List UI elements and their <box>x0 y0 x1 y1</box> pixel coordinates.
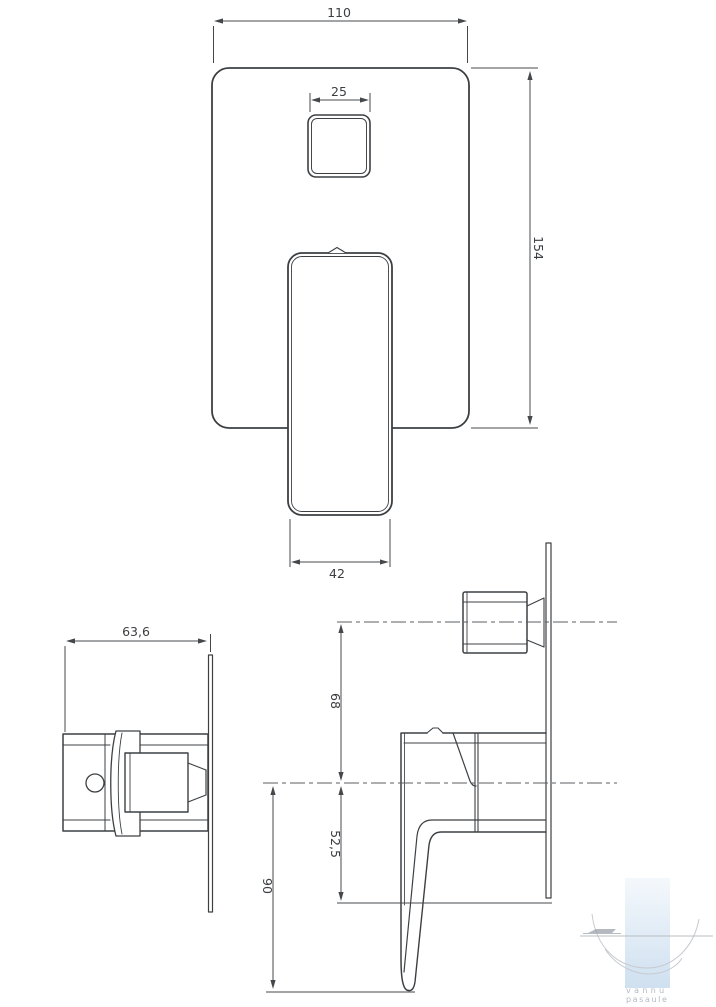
side-handle-index-mark <box>427 728 443 733</box>
dim-110-lines <box>214 21 468 63</box>
dim-636-lines <box>65 634 211 732</box>
top-fixing-hole <box>86 774 104 792</box>
side-view <box>401 543 551 991</box>
front-diverter-button <box>308 115 370 177</box>
dim-label-handle-width: 42 <box>329 566 345 581</box>
watermark-text-line2: pasaule <box>626 995 668 1004</box>
dim-label-depth: 63,6 <box>122 624 150 639</box>
dim-label-plate-bottom-offset: 52,5 <box>328 830 343 858</box>
dim-label-diverter-offset: 68 <box>328 693 343 709</box>
dim-42-lines <box>290 519 390 567</box>
technical-drawing-page: vannu pasaule <box>0 0 716 1007</box>
top-plate-edge <box>209 655 213 912</box>
side-body-lower-edge-upper <box>404 820 546 972</box>
dim-label-height: 154 <box>531 236 546 260</box>
watermark-logo: vannu pasaule <box>580 878 713 1004</box>
dim-label-width: 110 <box>327 5 351 20</box>
side-body-lower-edge-and-lever <box>409 832 546 991</box>
dim-label-handle-drop: 90 <box>260 878 275 894</box>
dim-label-button-width: 25 <box>331 84 347 99</box>
technical-drawing-canvas: vannu pasaule <box>0 0 716 1007</box>
watermark-streak <box>588 929 616 933</box>
centerlines <box>263 622 617 783</box>
side-body-joint-lines <box>475 733 478 832</box>
front-view <box>212 68 469 515</box>
top-view <box>63 655 213 912</box>
top-cartridge-housing <box>125 753 188 812</box>
front-handle-outline <box>288 253 392 515</box>
side-plate-edge <box>546 543 551 898</box>
side-handle-front-edge <box>401 733 409 991</box>
dim-525-lines <box>337 788 552 903</box>
object-geometry <box>63 68 551 991</box>
side-handle-slant-line <box>453 733 476 786</box>
watermark-text-line1: vannu <box>626 985 667 995</box>
dim-154-lines <box>471 68 538 428</box>
